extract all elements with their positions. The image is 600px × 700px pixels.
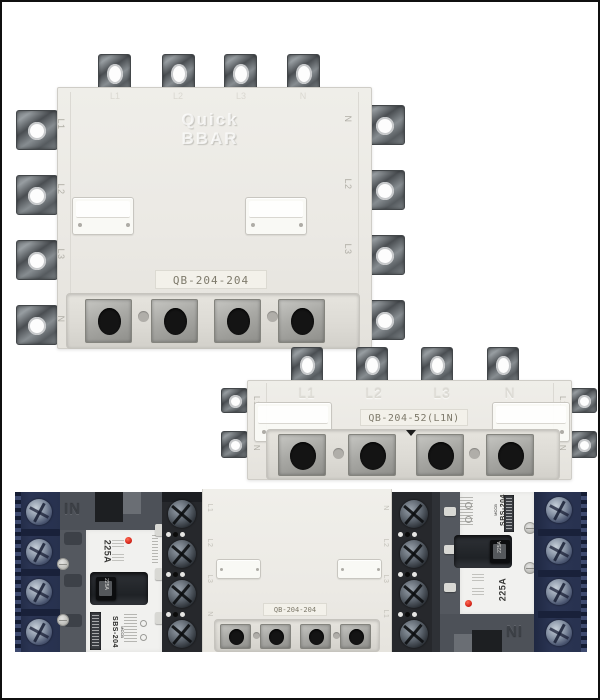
cert-mark-icon [465, 516, 472, 523]
spec-microtext [472, 588, 484, 597]
indicator-dot [398, 572, 403, 577]
terminal-separator [538, 570, 581, 577]
terminal-screw-icon [400, 540, 428, 568]
terminal-screw-icon [400, 580, 428, 608]
rating-text: 225A [498, 575, 509, 605]
terminal-screw-icon [546, 620, 572, 646]
terminal-screw-icon [546, 579, 572, 605]
indicator-dot [412, 572, 417, 577]
indicator-dot [412, 532, 417, 537]
housing-tab [444, 583, 456, 592]
spec-microtext [472, 574, 484, 583]
housing-tab [444, 507, 456, 516]
terminal-separator [538, 611, 581, 618]
indicator-dot [405, 612, 410, 617]
terminal-screw-icon [400, 500, 428, 528]
cert-mark-icon [465, 502, 472, 509]
indicator-dot [405, 532, 410, 537]
indicator-dot [405, 572, 410, 577]
terminal-screw-icon [546, 538, 572, 564]
indicator-dot [398, 612, 403, 617]
model-text: MCCB SBS-204 [492, 490, 508, 530]
mechanism-cover [472, 630, 502, 652]
mechanism-step [454, 634, 472, 652]
terminal-screw-icon [400, 620, 428, 648]
handle-rating-tag: 225A [493, 544, 506, 559]
product-photo-canvas: L1 L2 L3 N L1 L2 L3 N N L2 L3 L1 Quick B… [0, 0, 600, 700]
photo-breaker-right: MCCB SBS-204 225A 225A IN [2, 2, 600, 700]
serrated-edge [581, 492, 587, 652]
molded-mark: IN [505, 622, 522, 639]
terminal-screw-icon [546, 497, 572, 523]
trip-indicator [465, 600, 472, 607]
terminal-separator [538, 529, 581, 536]
indicator-dot [398, 532, 403, 537]
indicator-dot [412, 612, 417, 617]
terminal-block-column [432, 492, 440, 652]
